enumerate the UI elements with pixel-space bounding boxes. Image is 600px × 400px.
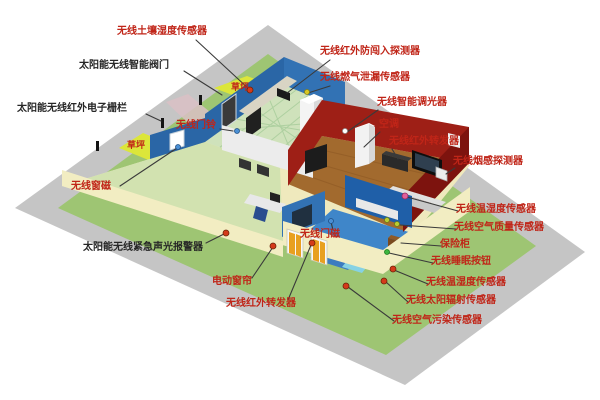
label-doorbell: 无线门铃 <box>176 120 216 132</box>
label-electric-curtain: 电动窗帘 <box>212 276 252 288</box>
smart-home-layout-diagram: 无线土壤湿度传感器 太阳能无线智能阀门 太阳能无线红外电子栅栏 草坪 草坪 无线… <box>0 0 600 400</box>
label-air-conditioner: 空调 <box>379 119 399 131</box>
label-safe-box: 保险柜 <box>440 239 470 251</box>
label-air-pollution-sensor: 无线空气污染传感器 <box>392 315 482 327</box>
label-lawn-top: 草坪 <box>231 81 249 93</box>
fence-post-icon <box>161 118 164 128</box>
solar-radiation-marker-icon <box>381 278 387 284</box>
air-quality-marker-icon <box>395 222 400 227</box>
label-sleep-button: 无线睡眠按钮 <box>431 256 491 268</box>
sleep-button-marker-icon <box>385 250 390 255</box>
ac-unit-side <box>369 124 375 164</box>
curtain-panel-icon <box>289 232 295 255</box>
label-ir-repeater-bottom: 无线红外转发器 <box>226 298 296 310</box>
label-ir-repeater-top: 无线红外转发器 <box>389 136 459 148</box>
label-gas-leak-sensor: 无线燃气泄漏传感器 <box>320 72 410 84</box>
label-air-quality-sensor: 无线空气质量传感器 <box>454 222 544 234</box>
label-temp-humidity-outdoor: 无线温湿度传感器 <box>426 277 506 289</box>
label-lawn-left: 草坪 <box>127 139 145 151</box>
label-smoke-detector: 无线烟感探测器 <box>453 156 523 168</box>
air-quality-marker-icon <box>385 218 390 223</box>
alarm-marker-icon <box>223 230 229 236</box>
curtain-panel-icon <box>320 241 325 264</box>
label-solar-ir-electric-fence: 太阳能无线红外电子栅栏 <box>17 103 127 115</box>
window-magnet-marker-icon <box>176 145 181 150</box>
dimmer-marker-icon <box>343 129 348 134</box>
fence-post-icon <box>96 141 99 151</box>
door-magnet-marker-icon <box>329 219 334 224</box>
label-soil-moisture-sensor: 无线土壤湿度传感器 <box>117 26 207 38</box>
fence-post-icon <box>199 95 202 105</box>
ac-unit-icon <box>355 124 369 168</box>
label-solar-smart-valve: 太阳能无线智能阀门 <box>79 60 169 72</box>
label-temp-humidity-indoor: 无线温湿度传感器 <box>456 204 536 216</box>
temp-indoor-marker-icon <box>402 193 408 199</box>
label-intrusion-detector: 无线红外防闯入探测器 <box>320 46 420 58</box>
temp-outdoor-marker-icon <box>390 266 396 272</box>
air-pollution-marker-icon <box>343 283 349 289</box>
doorbell-marker-icon <box>235 129 240 134</box>
label-window-magnet: 无线窗磁 <box>71 181 111 193</box>
curtain-marker-icon <box>270 243 276 249</box>
label-door-magnet: 无线门磁 <box>300 229 340 241</box>
label-sound-light-alarm: 太阳能无线紧急声光报警器 <box>83 242 203 254</box>
label-smart-dimmer: 无线智能调光器 <box>377 97 447 109</box>
label-solar-radiation-sensor: 无线太阳辐射传感器 <box>406 295 496 307</box>
gas-marker-icon <box>305 90 310 95</box>
